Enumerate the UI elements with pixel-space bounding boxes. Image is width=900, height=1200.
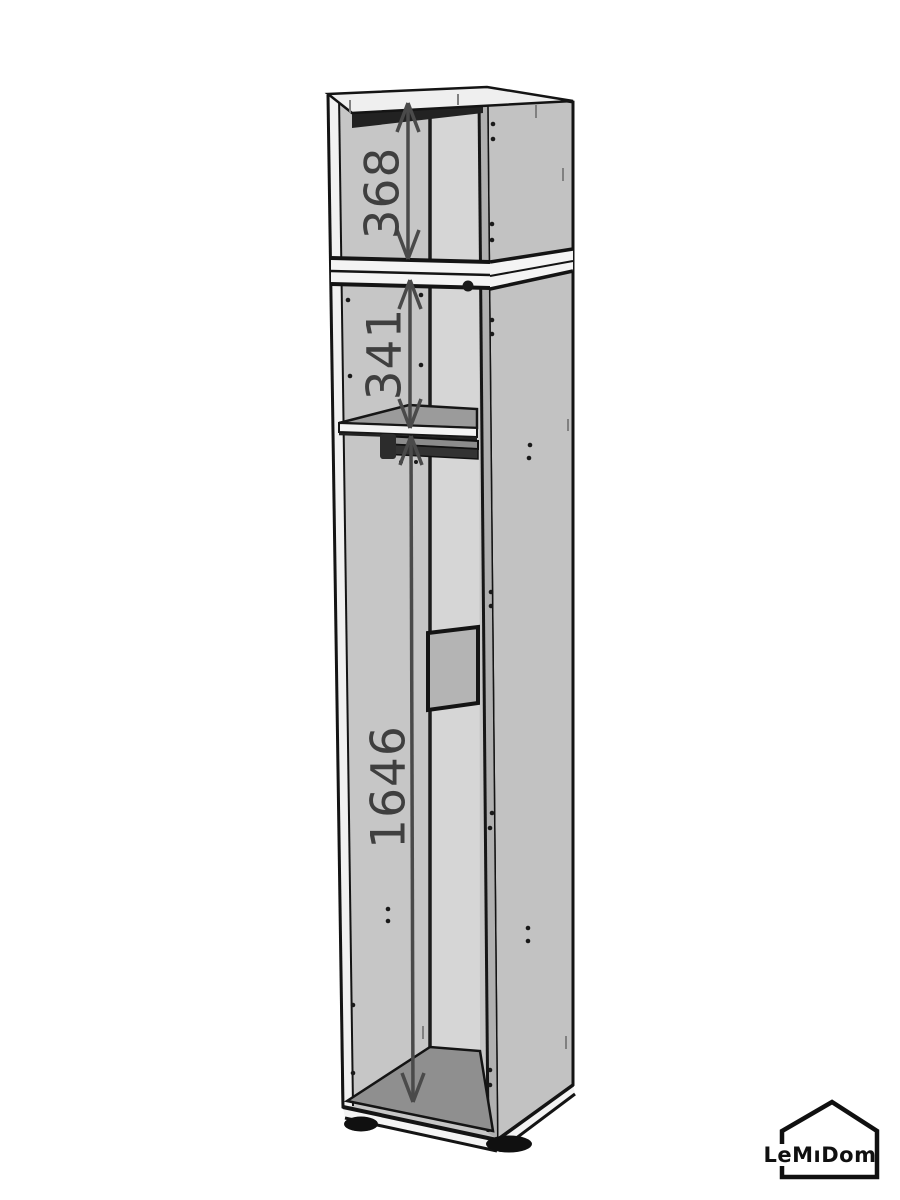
dimension-label-middle: 341 bbox=[358, 308, 413, 401]
rail-end-cap bbox=[380, 434, 396, 459]
right-foot bbox=[486, 1136, 532, 1153]
dimension-label-bottom: 1646 bbox=[362, 725, 417, 849]
brand-logo-text: LeMıDom bbox=[764, 1143, 877, 1167]
left-foot bbox=[344, 1117, 378, 1132]
cam-lock-fitting bbox=[463, 281, 474, 292]
wardrobe-assembly-diagram: 368 341 1646 LeMıDom bbox=[0, 0, 900, 1200]
side-panel bbox=[487, 88, 573, 1140]
brand-logo: LeMıDom bbox=[764, 1102, 877, 1177]
back-panel bbox=[430, 95, 480, 1051]
dimension-label-top: 368 bbox=[356, 147, 411, 240]
assembly-drawing-page: 368 341 1646 LeMıDom bbox=[0, 0, 900, 1200]
back-brace-panel bbox=[428, 627, 478, 710]
